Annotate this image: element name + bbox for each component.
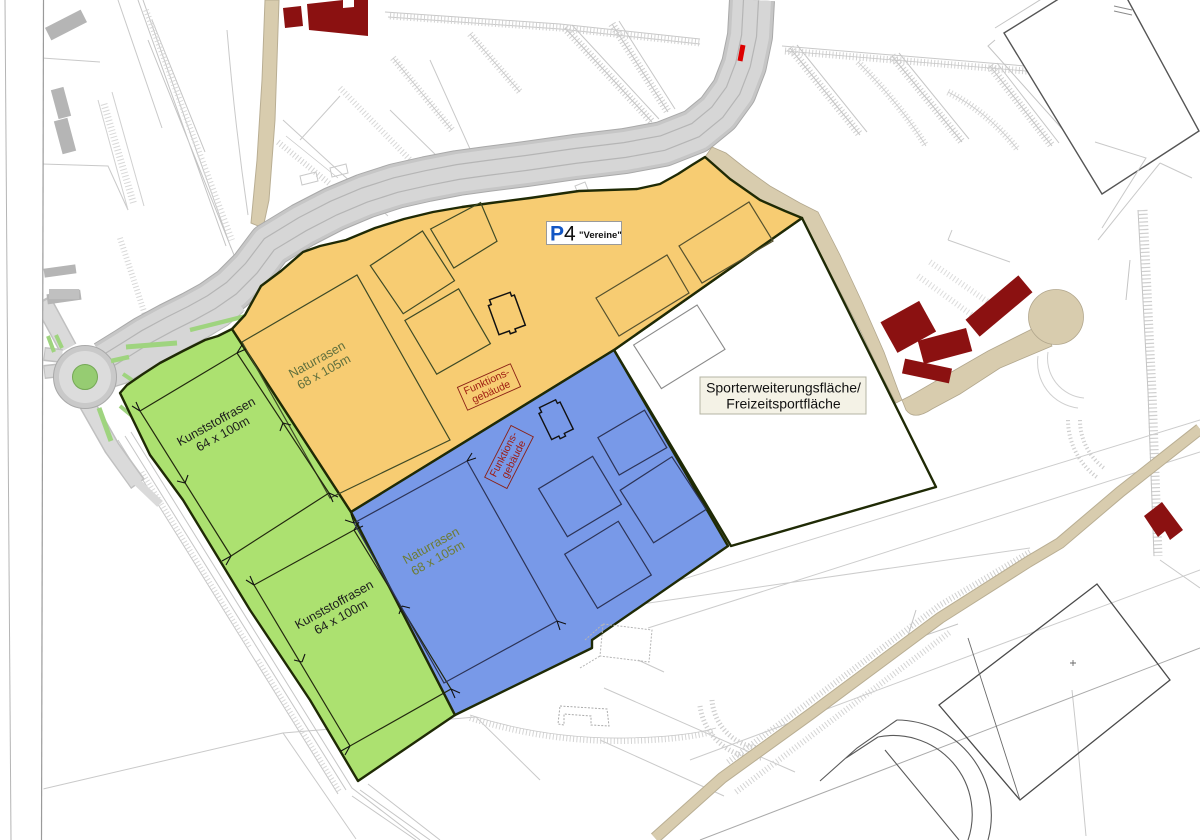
svg-text:Sporterweiterungsfläche/: Sporterweiterungsfläche/: [706, 380, 861, 396]
svg-text:Freizeitsportfläche: Freizeitsportfläche: [726, 396, 841, 412]
svg-text:4: 4: [564, 223, 576, 246]
svg-text:"Vereine": "Vereine": [579, 230, 622, 241]
svg-text:P: P: [550, 223, 564, 246]
